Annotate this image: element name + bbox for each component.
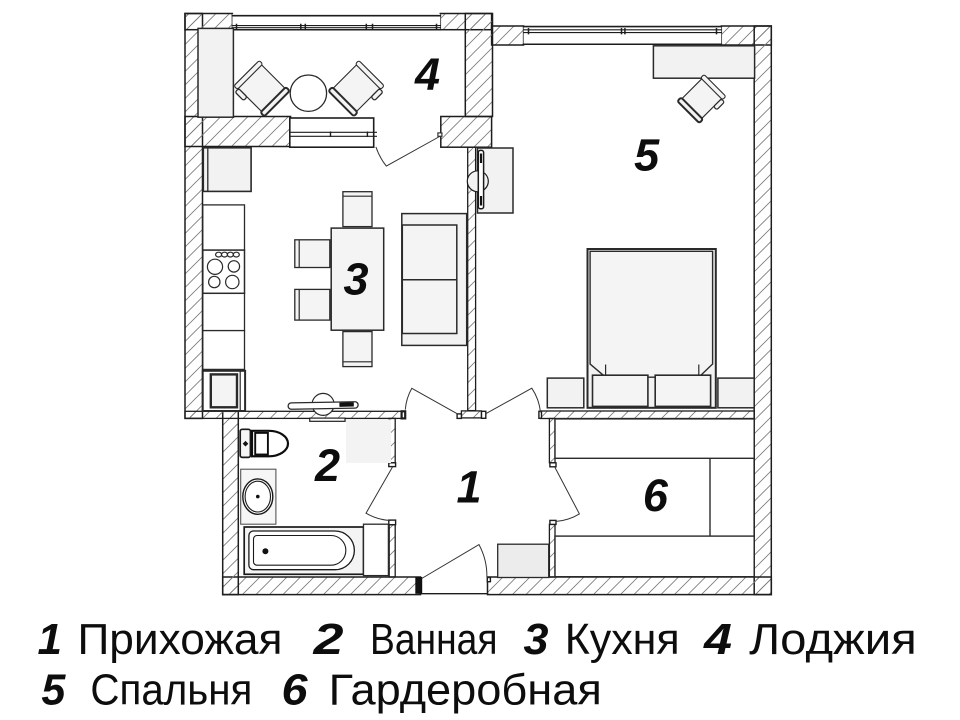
svg-text:Кухня: Кухня [565, 615, 680, 664]
svg-text:4: 4 [703, 615, 732, 664]
svg-text:2: 2 [312, 615, 344, 664]
svg-text:3: 3 [524, 615, 549, 664]
svg-text:Лоджия: Лоджия [749, 615, 917, 664]
svg-text:2: 2 [314, 440, 340, 491]
svg-text:4: 4 [414, 49, 440, 100]
svg-text:1: 1 [456, 462, 481, 513]
svg-text:5: 5 [634, 130, 660, 181]
svg-text:1: 1 [38, 615, 62, 664]
svg-text:Ванная: Ванная [370, 615, 498, 664]
svg-text:6: 6 [282, 666, 309, 715]
svg-text:5: 5 [41, 666, 66, 715]
svg-text:3: 3 [343, 254, 368, 305]
svg-text:Прихожая: Прихожая [78, 615, 283, 664]
svg-text:6: 6 [643, 470, 669, 521]
svg-text:Гардеробная: Гардеробная [329, 666, 602, 715]
svg-text:Спальня: Спальня [90, 666, 252, 715]
